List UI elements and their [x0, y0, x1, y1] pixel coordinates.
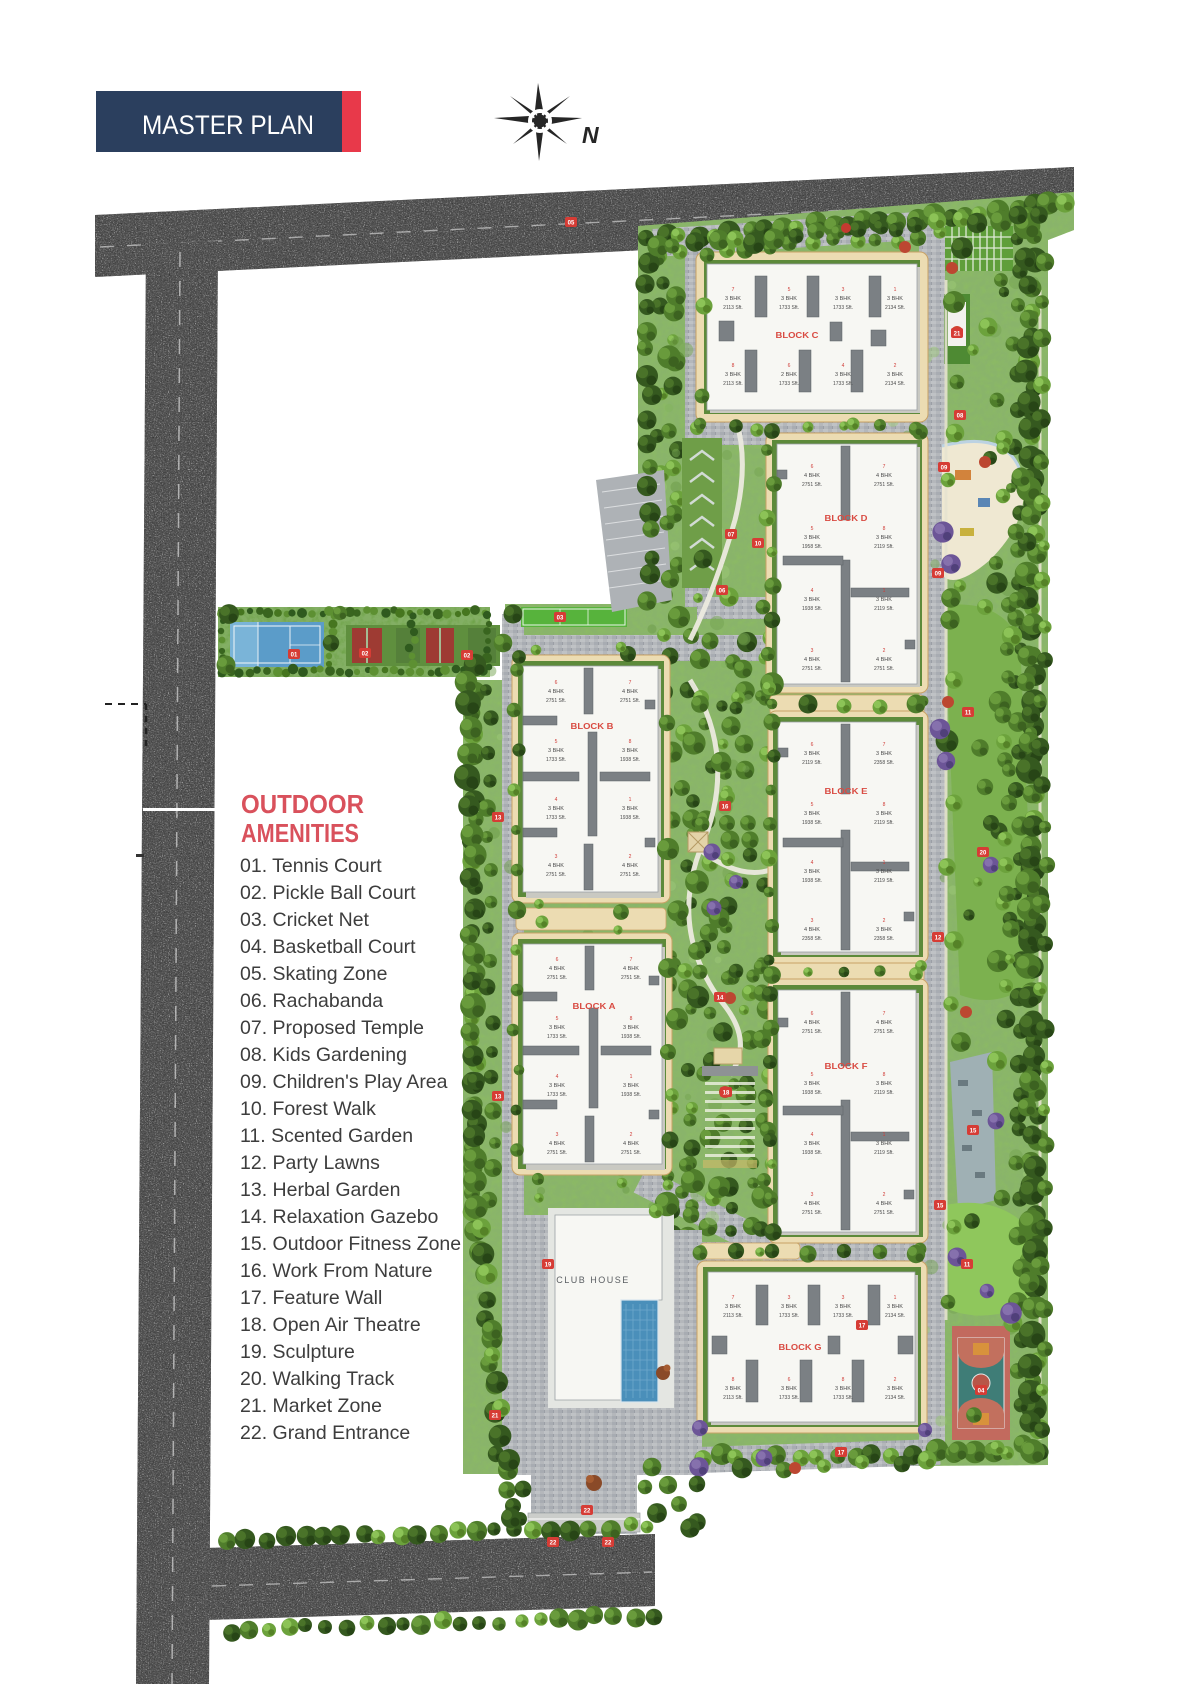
svg-text:1: 1	[883, 1132, 886, 1138]
svg-text:2751 Sft.: 2751 Sft.	[547, 1150, 567, 1156]
svg-text:4 BHK: 4 BHK	[623, 966, 639, 972]
svg-text:19: 19	[545, 1263, 552, 1269]
svg-text:1733 Sft.: 1733 Sft.	[833, 381, 853, 387]
svg-text:1: 1	[894, 287, 897, 293]
svg-text:2134 Sft.: 2134 Sft.	[885, 1395, 905, 1401]
svg-text:4: 4	[811, 1132, 814, 1138]
svg-text:08: 08	[957, 414, 964, 420]
svg-text:22: 22	[584, 1509, 591, 1515]
svg-text:02. Pickle Ball Court: 02. Pickle Ball Court	[240, 882, 416, 904]
svg-text:4 BHK: 4 BHK	[622, 689, 638, 695]
svg-text:13. Herbal Garden: 13. Herbal Garden	[240, 1179, 400, 1201]
svg-text:1938 Sft.: 1938 Sft.	[620, 757, 640, 763]
svg-text:08. Kids Gardening: 08. Kids Gardening	[240, 1044, 407, 1066]
svg-text:3 BHK: 3 BHK	[549, 1025, 565, 1031]
svg-text:22: 22	[605, 1541, 612, 1547]
svg-text:6: 6	[556, 957, 559, 963]
svg-text:4: 4	[555, 797, 558, 803]
svg-text:3 BHK: 3 BHK	[876, 869, 892, 875]
svg-text:4 BHK: 4 BHK	[804, 927, 820, 933]
svg-text:2119 Sft.: 2119 Sft.	[874, 606, 894, 612]
svg-text:2358 Sft.: 2358 Sft.	[802, 936, 822, 942]
svg-text:3 BHK: 3 BHK	[887, 1386, 903, 1392]
svg-text:7: 7	[629, 680, 632, 686]
svg-text:14: 14	[717, 996, 724, 1002]
svg-text:3 BHK: 3 BHK	[876, 1141, 892, 1147]
svg-text:1733 Sft.: 1733 Sft.	[547, 1092, 567, 1098]
svg-text:1733 Sft.: 1733 Sft.	[833, 1395, 853, 1401]
svg-text:BLOCK E: BLOCK E	[825, 787, 869, 796]
svg-text:7: 7	[732, 1295, 735, 1301]
svg-text:1938 Sft.: 1938 Sft.	[621, 1034, 641, 1040]
svg-text:2134 Sft.: 2134 Sft.	[885, 1313, 905, 1319]
svg-text:1938 Sft.: 1938 Sft.	[621, 1092, 641, 1098]
svg-text:3 BHK: 3 BHK	[781, 1304, 797, 1310]
svg-text:2119 Sft.: 2119 Sft.	[802, 760, 822, 766]
svg-text:4 BHK: 4 BHK	[876, 473, 892, 479]
svg-text:07. Proposed Temple: 07. Proposed Temple	[240, 1017, 424, 1039]
svg-text:16: 16	[722, 805, 729, 811]
svg-text:4 BHK: 4 BHK	[548, 689, 564, 695]
svg-text:3 BHK: 3 BHK	[725, 1386, 741, 1392]
svg-text:2113 Sft.: 2113 Sft.	[723, 381, 743, 387]
svg-text:4 BHK: 4 BHK	[876, 1201, 892, 1207]
svg-text:3 BHK: 3 BHK	[835, 1304, 851, 1310]
svg-text:2751 Sft.: 2751 Sft.	[874, 1210, 894, 1216]
svg-text:06: 06	[719, 589, 726, 595]
svg-text:3 BHK: 3 BHK	[835, 296, 851, 302]
svg-text:4 BHK: 4 BHK	[876, 1020, 892, 1026]
svg-text:BLOCK A: BLOCK A	[573, 1002, 616, 1011]
svg-text:2751 Sft.: 2751 Sft.	[620, 698, 640, 704]
svg-text:1: 1	[629, 797, 632, 803]
svg-text:4 BHK: 4 BHK	[804, 1020, 820, 1026]
svg-text:2134 Sft.: 2134 Sft.	[885, 381, 905, 387]
svg-text:BLOCK F: BLOCK F	[825, 1062, 868, 1071]
svg-text:2134 Sft.: 2134 Sft.	[885, 305, 905, 311]
svg-text:3 BHK: 3 BHK	[549, 1083, 565, 1089]
svg-text:CLUB HOUSE: CLUB HOUSE	[556, 1275, 630, 1285]
svg-text:2113 Sft.: 2113 Sft.	[723, 1313, 743, 1319]
svg-text:2: 2	[894, 363, 897, 369]
svg-text:1733 Sft.: 1733 Sft.	[833, 1313, 853, 1319]
svg-text:06. Rachabanda: 06. Rachabanda	[240, 990, 383, 1012]
svg-text:1958 Sft.: 1958 Sft.	[802, 544, 822, 550]
svg-text:2751 Sft.: 2751 Sft.	[802, 1210, 822, 1216]
svg-text:21: 21	[954, 332, 961, 338]
svg-text:15. Outdoor Fitness Zone: 15. Outdoor Fitness Zone	[240, 1233, 461, 1255]
svg-text:OUTDOOR: OUTDOOR	[241, 789, 364, 819]
svg-text:8: 8	[732, 363, 735, 369]
svg-text:2358 Sft.: 2358 Sft.	[874, 760, 894, 766]
svg-text:1938 Sft.: 1938 Sft.	[802, 606, 822, 612]
svg-text:BLOCK B: BLOCK B	[571, 722, 614, 731]
svg-text:09. Children's Play Area: 09. Children's Play Area	[240, 1071, 448, 1093]
svg-text:01. Tennis Court: 01. Tennis Court	[240, 855, 382, 877]
svg-text:3 BHK: 3 BHK	[725, 296, 741, 302]
svg-text:2751 Sft.: 2751 Sft.	[621, 1150, 641, 1156]
svg-text:1938 Sft.: 1938 Sft.	[802, 1150, 822, 1156]
svg-text:22: 22	[550, 1541, 557, 1547]
svg-text:2113 Sft.: 2113 Sft.	[723, 305, 743, 311]
svg-text:5: 5	[811, 526, 814, 532]
svg-text:2751 Sft.: 2751 Sft.	[802, 482, 822, 488]
svg-text:4 BHK: 4 BHK	[804, 657, 820, 663]
svg-text:3 BHK: 3 BHK	[622, 748, 638, 754]
svg-text:04. Basketball Court: 04. Basketball Court	[240, 936, 416, 958]
svg-text:3 BHK: 3 BHK	[835, 372, 851, 378]
svg-text:11: 11	[965, 711, 972, 717]
svg-text:3: 3	[788, 1295, 791, 1301]
svg-text:02: 02	[464, 654, 471, 660]
svg-text:4 BHK: 4 BHK	[804, 473, 820, 479]
svg-text:5: 5	[788, 287, 791, 293]
svg-text:11: 11	[964, 1263, 971, 1269]
svg-text:2119 Sft.: 2119 Sft.	[874, 1090, 894, 1096]
svg-text:1: 1	[894, 1295, 897, 1301]
svg-text:13: 13	[495, 1095, 502, 1101]
svg-text:7: 7	[883, 464, 886, 470]
svg-text:3 BHK: 3 BHK	[876, 927, 892, 933]
svg-text:3 BHK: 3 BHK	[548, 748, 564, 754]
svg-text:1733 Sft.: 1733 Sft.	[546, 815, 566, 821]
svg-text:7: 7	[732, 287, 735, 293]
svg-text:1733 Sft.: 1733 Sft.	[779, 1313, 799, 1319]
svg-text:AMENITIES: AMENITIES	[241, 818, 359, 848]
svg-text:04: 04	[978, 1389, 985, 1395]
svg-text:09: 09	[935, 572, 942, 578]
svg-text:18. Open Air Theatre: 18. Open Air Theatre	[240, 1314, 421, 1336]
svg-text:3 BHK: 3 BHK	[804, 1141, 820, 1147]
svg-text:MASTER PLAN: MASTER PLAN	[142, 110, 314, 140]
svg-text:4 BHK: 4 BHK	[549, 966, 565, 972]
svg-text:3: 3	[555, 854, 558, 860]
svg-text:8: 8	[883, 1072, 886, 1078]
svg-text:2119 Sft.: 2119 Sft.	[874, 820, 894, 826]
svg-text:3 BHK: 3 BHK	[548, 806, 564, 812]
svg-text:3 BHK: 3 BHK	[876, 751, 892, 757]
svg-text:21. Market Zone: 21. Market Zone	[240, 1395, 382, 1417]
svg-text:5: 5	[811, 1072, 814, 1078]
svg-text:05. Skating Zone: 05. Skating Zone	[240, 963, 387, 985]
svg-text:18: 18	[723, 1091, 730, 1097]
svg-text:21: 21	[492, 1414, 499, 1420]
svg-text:4 BHK: 4 BHK	[622, 863, 638, 869]
svg-text:17: 17	[838, 1451, 845, 1457]
svg-text:07: 07	[728, 533, 735, 539]
svg-text:3: 3	[556, 1132, 559, 1138]
svg-text:6: 6	[811, 464, 814, 470]
svg-text:1733 Sft.: 1733 Sft.	[779, 305, 799, 311]
svg-text:8: 8	[883, 526, 886, 532]
svg-text:3 BHK: 3 BHK	[887, 372, 903, 378]
svg-text:3: 3	[842, 1295, 845, 1301]
svg-text:01: 01	[291, 653, 298, 659]
svg-text:16. Work From Nature: 16. Work From Nature	[240, 1260, 433, 1282]
svg-text:3 BHK: 3 BHK	[876, 535, 892, 541]
svg-text:BLOCK D: BLOCK D	[825, 514, 868, 523]
svg-text:3 BHK: 3 BHK	[804, 1081, 820, 1087]
svg-text:1733 Sft.: 1733 Sft.	[779, 1395, 799, 1401]
svg-text:6: 6	[788, 1377, 791, 1383]
svg-text:20: 20	[980, 851, 987, 857]
svg-text:17. Feature Wall: 17. Feature Wall	[240, 1287, 382, 1309]
svg-text:6: 6	[788, 363, 791, 369]
svg-text:2751 Sft.: 2751 Sft.	[547, 975, 567, 981]
svg-text:8: 8	[630, 1016, 633, 1022]
svg-text:4 BHK: 4 BHK	[623, 1141, 639, 1147]
svg-text:2751 Sft.: 2751 Sft.	[874, 482, 894, 488]
svg-text:2119 Sft.: 2119 Sft.	[874, 1150, 894, 1156]
svg-text:02: 02	[362, 652, 369, 658]
svg-text:2 BHK: 2 BHK	[781, 372, 797, 378]
svg-text:8: 8	[842, 1377, 845, 1383]
svg-text:4 BHK: 4 BHK	[804, 1201, 820, 1207]
svg-text:1938 Sft.: 1938 Sft.	[620, 815, 640, 821]
svg-text:4: 4	[811, 860, 814, 866]
svg-text:4: 4	[811, 588, 814, 594]
svg-text:5: 5	[811, 802, 814, 808]
svg-text:03: 03	[557, 616, 564, 622]
svg-text:3 BHK: 3 BHK	[876, 1081, 892, 1087]
svg-text:3 BHK: 3 BHK	[622, 806, 638, 812]
svg-text:8: 8	[629, 739, 632, 745]
svg-text:2751 Sft.: 2751 Sft.	[802, 1029, 822, 1035]
svg-text:20. Walking Track: 20. Walking Track	[240, 1368, 394, 1390]
svg-text:N: N	[582, 122, 599, 148]
svg-text:6: 6	[555, 680, 558, 686]
svg-text:22. Grand Entrance: 22. Grand Entrance	[240, 1422, 410, 1444]
svg-text:3 BHK: 3 BHK	[804, 811, 820, 817]
svg-text:4 BHK: 4 BHK	[549, 1141, 565, 1147]
svg-text:1733 Sft.: 1733 Sft.	[546, 757, 566, 763]
svg-text:5: 5	[556, 1016, 559, 1022]
svg-text:2751 Sft.: 2751 Sft.	[546, 698, 566, 704]
svg-text:1938 Sft.: 1938 Sft.	[802, 1090, 822, 1096]
svg-text:14. Relaxation Gazebo: 14. Relaxation Gazebo	[240, 1206, 439, 1228]
svg-text:7: 7	[883, 1011, 886, 1017]
svg-text:3 BHK: 3 BHK	[804, 751, 820, 757]
svg-text:1: 1	[883, 860, 886, 866]
svg-text:8: 8	[732, 1377, 735, 1383]
svg-text:3 BHK: 3 BHK	[781, 296, 797, 302]
svg-text:3: 3	[811, 648, 814, 654]
svg-text:12: 12	[935, 936, 942, 942]
svg-text:2751 Sft.: 2751 Sft.	[874, 1029, 894, 1035]
svg-text:3 BHK: 3 BHK	[804, 597, 820, 603]
svg-text:3 BHK: 3 BHK	[623, 1025, 639, 1031]
svg-text:8: 8	[883, 802, 886, 808]
svg-text:1: 1	[630, 1074, 633, 1080]
svg-text:1733 Sft.: 1733 Sft.	[779, 381, 799, 387]
svg-text:4 BHK: 4 BHK	[876, 657, 892, 663]
svg-text:05: 05	[568, 221, 575, 227]
svg-text:10: 10	[755, 542, 762, 548]
svg-text:1938 Sft.: 1938 Sft.	[802, 878, 822, 884]
svg-text:11. Scented Garden: 11. Scented Garden	[240, 1125, 413, 1147]
svg-text:3 BHK: 3 BHK	[876, 597, 892, 603]
svg-text:2751 Sft.: 2751 Sft.	[802, 666, 822, 672]
svg-text:2: 2	[629, 854, 632, 860]
svg-text:2: 2	[883, 1192, 886, 1198]
svg-text:7: 7	[630, 957, 633, 963]
svg-text:3: 3	[811, 918, 814, 924]
svg-text:2751 Sft.: 2751 Sft.	[620, 872, 640, 878]
svg-text:09: 09	[941, 466, 948, 472]
svg-text:10. Forest Walk: 10. Forest Walk	[240, 1098, 376, 1120]
svg-text:BLOCK C: BLOCK C	[776, 331, 819, 340]
svg-text:3 BHK: 3 BHK	[887, 1304, 903, 1310]
svg-text:7: 7	[883, 742, 886, 748]
svg-text:03. Cricket Net: 03. Cricket Net	[240, 909, 370, 931]
svg-text:3: 3	[842, 287, 845, 293]
svg-text:1733 Sft.: 1733 Sft.	[833, 305, 853, 311]
svg-text:2751 Sft.: 2751 Sft.	[621, 975, 641, 981]
svg-text:2751 Sft.: 2751 Sft.	[874, 666, 894, 672]
svg-text:3 BHK: 3 BHK	[781, 1386, 797, 1392]
svg-text:3 BHK: 3 BHK	[725, 1304, 741, 1310]
svg-text:6: 6	[811, 742, 814, 748]
svg-text:BLOCK G: BLOCK G	[779, 1343, 822, 1352]
svg-text:3 BHK: 3 BHK	[725, 372, 741, 378]
svg-text:3 BHK: 3 BHK	[804, 869, 820, 875]
svg-text:4 BHK: 4 BHK	[548, 863, 564, 869]
svg-text:1: 1	[883, 588, 886, 594]
svg-text:3: 3	[811, 1192, 814, 1198]
svg-text:2: 2	[883, 648, 886, 654]
svg-text:2: 2	[630, 1132, 633, 1138]
svg-text:12. Party Lawns: 12. Party Lawns	[240, 1152, 380, 1174]
svg-text:6: 6	[811, 1011, 814, 1017]
svg-text:4: 4	[556, 1074, 559, 1080]
svg-text:2119 Sft.: 2119 Sft.	[874, 544, 894, 550]
svg-text:15: 15	[970, 1129, 977, 1135]
svg-text:3 BHK: 3 BHK	[804, 535, 820, 541]
svg-text:19. Sculpture: 19. Sculpture	[240, 1341, 355, 1363]
svg-text:2751 Sft.: 2751 Sft.	[546, 872, 566, 878]
svg-text:5: 5	[555, 739, 558, 745]
svg-text:3 BHK: 3 BHK	[887, 296, 903, 302]
svg-text:17: 17	[859, 1324, 866, 1330]
svg-text:3 BHK: 3 BHK	[876, 811, 892, 817]
svg-text:3 BHK: 3 BHK	[623, 1083, 639, 1089]
svg-text:2358 Sft.: 2358 Sft.	[874, 936, 894, 942]
svg-text:15: 15	[937, 1204, 944, 1210]
svg-text:2: 2	[894, 1377, 897, 1383]
svg-text:2119 Sft.: 2119 Sft.	[874, 878, 894, 884]
svg-text:3 BHK: 3 BHK	[835, 1386, 851, 1392]
svg-text:2113 Sft.: 2113 Sft.	[723, 1395, 743, 1401]
svg-text:13: 13	[495, 816, 502, 822]
svg-text:2: 2	[883, 918, 886, 924]
svg-text:4: 4	[842, 363, 845, 369]
svg-text:1938 Sft.: 1938 Sft.	[802, 820, 822, 826]
svg-text:1733 Sft.: 1733 Sft.	[547, 1034, 567, 1040]
